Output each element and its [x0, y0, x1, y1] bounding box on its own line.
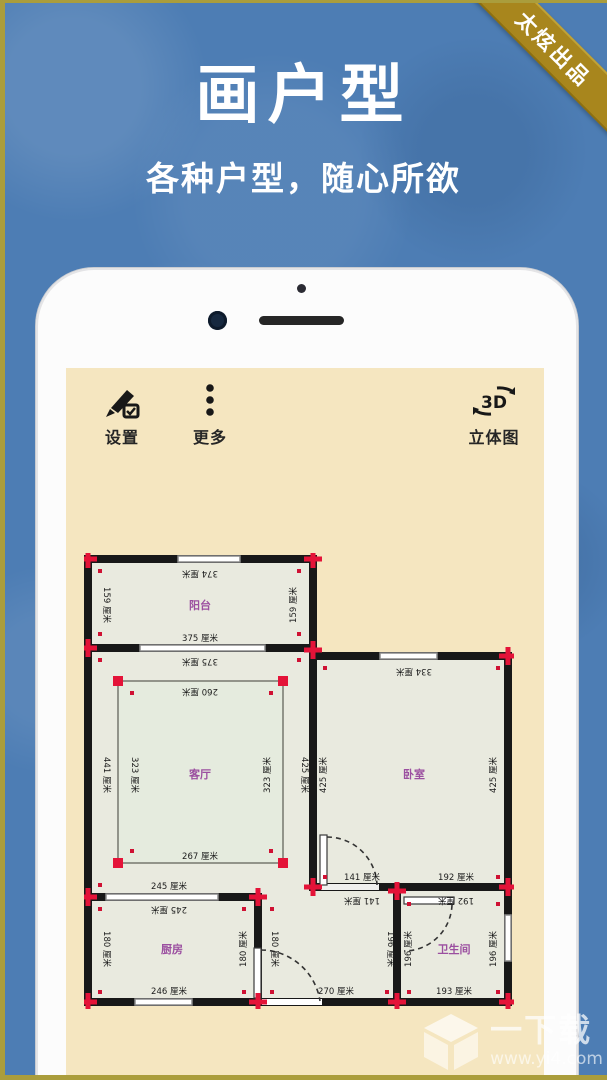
settings-label: 设置 — [105, 424, 139, 448]
room-label-balcony: 阳台 — [189, 598, 211, 612]
dim-balcony-right: 159 厘米 — [288, 587, 299, 623]
dim-kitchen-right: 180 厘米 — [238, 931, 249, 967]
window-kitchen-bottom — [135, 999, 192, 1005]
room-label-bathroom: 卫生间 — [438, 942, 471, 956]
phone-speaker — [259, 316, 344, 325]
view3d-button[interactable]: 3D 立体图 — [458, 382, 530, 446]
dim-balcony-left: 159 厘米 — [101, 587, 112, 623]
window-bathroom-right — [505, 915, 511, 961]
dim-balcony-bottom-above: 375 厘米 — [182, 633, 218, 644]
more-button[interactable]: 更多 — [174, 382, 246, 446]
dim-inner-left: 323 厘米 — [129, 757, 140, 793]
door-gap-bedroom — [321, 884, 379, 890]
dim-corridor-bottom: 270 厘米 — [318, 986, 354, 997]
wall-left — [84, 555, 92, 1006]
dim-inner-bottom: 267 厘米 — [182, 851, 218, 862]
dim-bedroom-left: 425 厘米 — [318, 757, 329, 793]
dim-bathroom-right: 196 厘米 — [488, 931, 499, 967]
pencil-edit-icon — [101, 382, 143, 422]
dim-balcony-top: 374 厘米 — [182, 568, 218, 579]
dim-kitchen-top-below: 245 厘米 — [151, 904, 187, 915]
wall-middle — [309, 652, 317, 891]
dim-inner-top: 260 厘米 — [182, 686, 218, 697]
dim-balcony-bottom-below: 375 厘米 — [182, 656, 218, 667]
dim-bathroom-left-inner: 196 厘米 — [403, 931, 414, 967]
watermark-title: 一下载 — [490, 1014, 592, 1046]
promo-screenshot: 画户型 各种户型，随心所欲 太炫出品 设置 更多 — [0, 0, 607, 1080]
page-title: 画户型 — [0, 44, 607, 136]
window-balcony-bottom — [140, 645, 265, 651]
dim-bed-bottom-left-below: 141 厘米 — [344, 895, 380, 906]
door-leaf-entry — [254, 948, 261, 998]
dim-bathroom-left-outer: 196 厘米 — [385, 931, 396, 967]
dim-inner-right: 323 厘米 — [262, 757, 273, 793]
window-bedroom-top — [380, 653, 437, 659]
dim-corridor-left: 180 厘米 — [269, 931, 280, 967]
view3d-label: 立体图 — [468, 424, 519, 448]
window-kitchen-top — [106, 894, 218, 900]
dim-living-right: 425 厘米 — [299, 757, 310, 793]
gold-border-left — [0, 0, 5, 1080]
phone-camera-dot — [297, 284, 306, 293]
site-watermark: 一下载 www.yi4.com — [418, 1008, 603, 1074]
more-dots-icon — [204, 382, 216, 422]
dim-bed-bottom-left-above: 141 厘米 — [344, 872, 380, 883]
more-label: 更多 — [193, 424, 227, 448]
room-label-kitchen: 厨房 — [161, 942, 183, 956]
dim-kitchen-top-above: 245 厘米 — [151, 881, 187, 892]
dim-kitchen-bottom: 246 厘米 — [151, 986, 187, 997]
settings-button[interactable]: 设置 — [86, 382, 158, 446]
room-label-bedroom: 卧室 — [403, 767, 425, 781]
dim-kitchen-left: 180 厘米 — [101, 931, 112, 967]
cube-icon — [418, 1008, 484, 1074]
dim-bathroom-bottom: 193 厘米 — [436, 986, 472, 997]
3d-icon-text: 3D — [481, 393, 507, 413]
dim-living-left: 441 厘米 — [101, 757, 112, 793]
dim-bed-bottom-right-below: 192 厘米 — [438, 895, 474, 906]
dim-bedroom-top: 334 厘米 — [396, 666, 432, 677]
gold-border-bottom — [0, 1075, 607, 1080]
dim-bedroom-right: 425 厘米 — [488, 757, 499, 793]
dim-bed-bottom-right-above: 192 厘米 — [438, 872, 474, 883]
3d-rotate-icon: 3D — [467, 382, 521, 422]
floorplan-canvas[interactable]: 阳台 客厅 卧室 厨房 卫生间 374 厘米 159 厘米 159 厘米 375… — [84, 553, 514, 1009]
phone-camera-lens — [208, 311, 227, 330]
door-gap-entry — [262, 999, 322, 1005]
watermark-url: www.yi4.com — [490, 1049, 603, 1069]
window-balcony-top — [178, 556, 240, 562]
room-label-living: 客厅 — [188, 767, 211, 781]
page-subtitle: 各种户型，随心所欲 — [0, 152, 607, 200]
gold-border-top — [0, 0, 607, 3]
